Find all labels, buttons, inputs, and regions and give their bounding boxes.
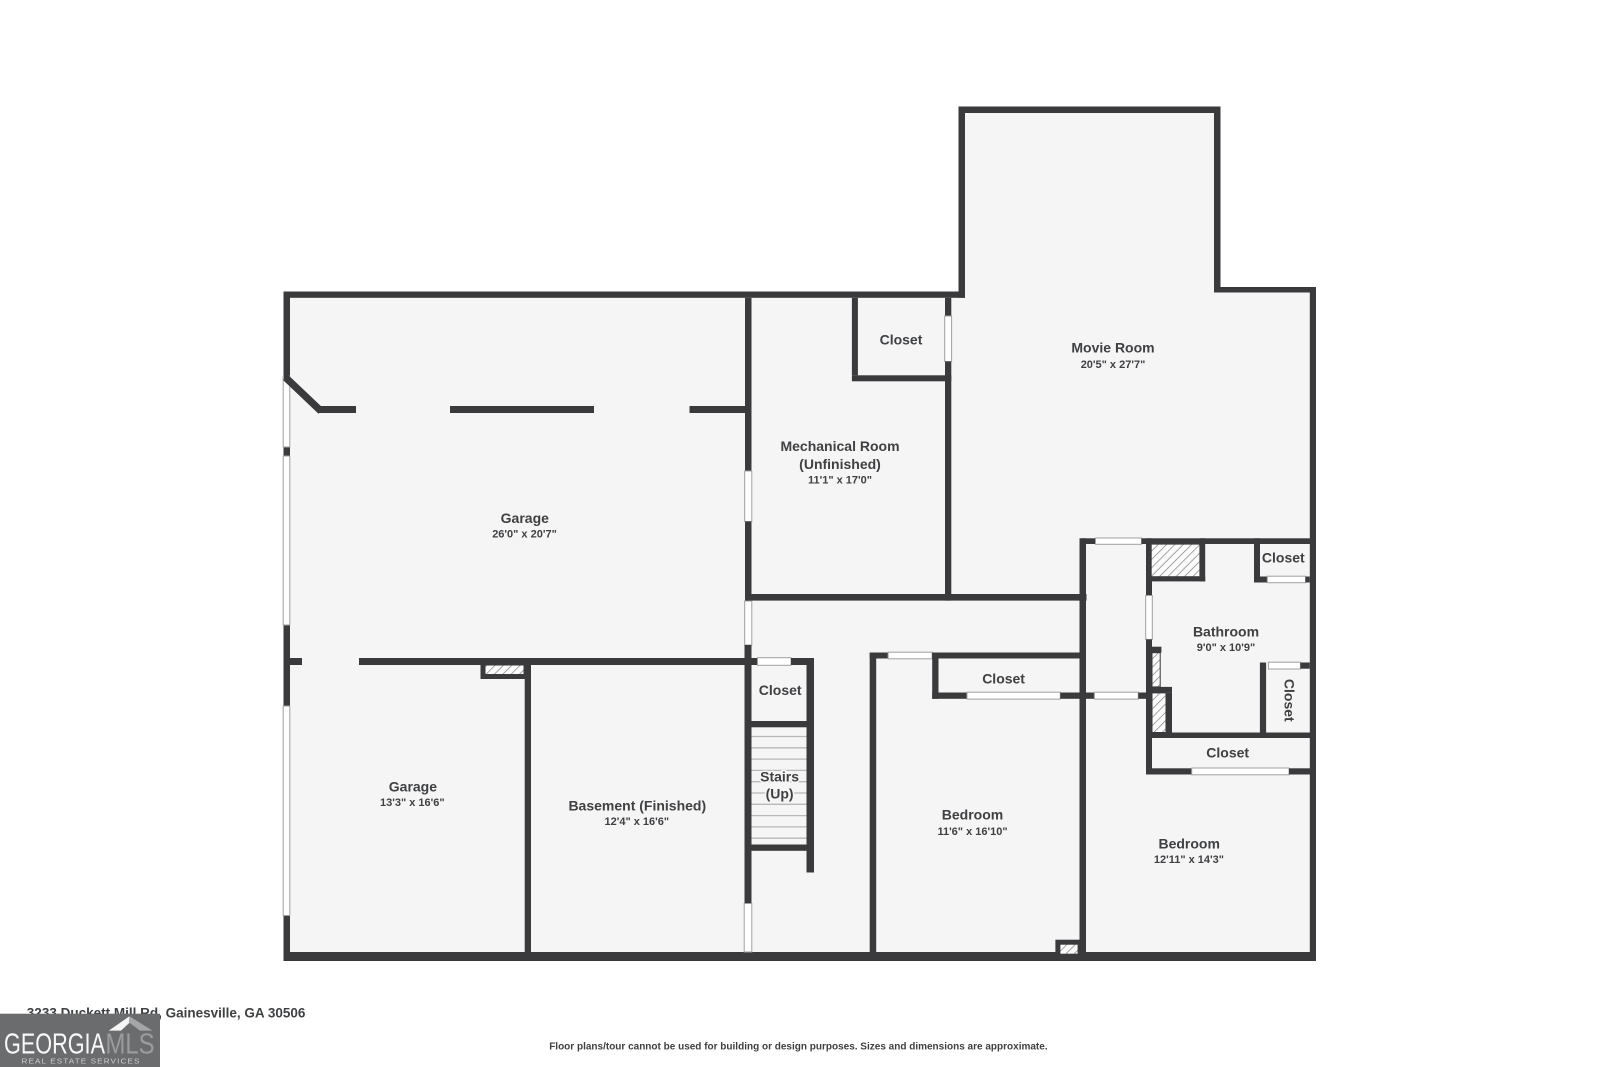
svg-text:(Up): (Up) xyxy=(766,786,794,802)
svg-text:26'0" x 20'7": 26'0" x 20'7" xyxy=(492,529,557,541)
svg-text:Closet: Closet xyxy=(982,671,1025,687)
svg-text:Garage: Garage xyxy=(389,778,437,794)
svg-text:Mechanical Room: Mechanical Room xyxy=(780,438,899,454)
svg-text:Bedroom: Bedroom xyxy=(1158,836,1219,852)
svg-text:Movie Room: Movie Room xyxy=(1071,340,1154,356)
svg-text:Bedroom: Bedroom xyxy=(942,807,1003,823)
svg-text:11'6" x 16'10": 11'6" x 16'10" xyxy=(937,826,1007,838)
svg-text:Garage: Garage xyxy=(501,510,549,526)
svg-text:12'4" x 16'6": 12'4" x 16'6" xyxy=(604,816,669,828)
svg-text:12'11" x 14'3": 12'11" x 14'3" xyxy=(1154,854,1224,866)
svg-text:Closet: Closet xyxy=(759,682,802,698)
svg-text:20'5" x 27'7": 20'5" x 27'7" xyxy=(1081,359,1146,371)
svg-text:13'3" x 16'6": 13'3" x 16'6" xyxy=(380,797,445,809)
svg-text:9'0" x 10'9": 9'0" x 10'9" xyxy=(1197,642,1255,654)
svg-text:Closet: Closet xyxy=(1206,745,1249,761)
svg-text:Closet: Closet xyxy=(1262,549,1305,565)
svg-text:Stairs: Stairs xyxy=(760,769,799,785)
svg-text:Floor plans/tour cannot be use: Floor plans/tour cannot be used for buil… xyxy=(549,1041,1048,1052)
svg-text:Closet: Closet xyxy=(1281,679,1297,722)
svg-text:11'1" x 17'0": 11'1" x 17'0" xyxy=(808,475,872,487)
svg-text:(Unfinished): (Unfinished) xyxy=(799,456,881,472)
svg-text:Basement (Finished): Basement (Finished) xyxy=(568,797,706,813)
svg-text:REAL ESTATE SERVICES: REAL ESTATE SERVICES xyxy=(22,1057,141,1066)
svg-text:Closet: Closet xyxy=(880,332,923,348)
svg-text:Bathroom: Bathroom xyxy=(1193,623,1259,639)
